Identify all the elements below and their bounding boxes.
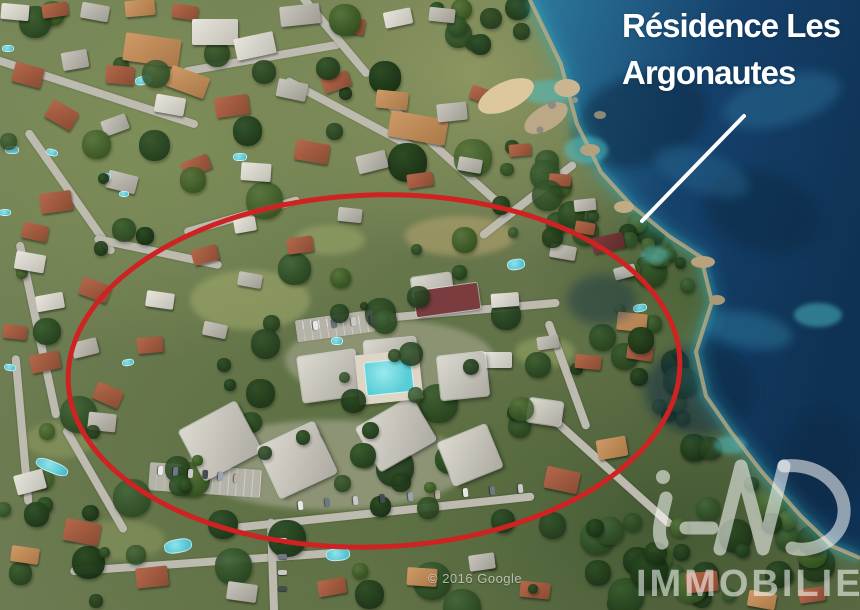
property-title-line2: Argonautes [622, 49, 840, 96]
house [240, 162, 271, 182]
pool [121, 358, 134, 367]
aerial-photo-canvas: Résidence Les Argonautes © 2016 Google I… [0, 0, 860, 610]
house [747, 590, 777, 610]
car [325, 498, 331, 507]
tree [443, 589, 481, 610]
house [145, 290, 175, 310]
house [428, 7, 455, 24]
tree [126, 545, 146, 565]
pool [632, 303, 647, 313]
house [2, 324, 27, 340]
car [278, 554, 287, 559]
car [462, 488, 468, 497]
tree [82, 130, 111, 159]
house [21, 221, 50, 242]
tree [452, 227, 477, 252]
house [406, 171, 434, 188]
tree [252, 60, 276, 84]
tree [670, 518, 689, 537]
tree [391, 473, 410, 492]
tree [675, 410, 691, 426]
tree [136, 227, 153, 244]
car [350, 317, 356, 327]
tree [417, 497, 439, 519]
house [61, 49, 90, 71]
tree [339, 372, 350, 383]
property-title-line1: Résidence Les [622, 2, 840, 49]
tree [251, 329, 281, 359]
house [685, 571, 719, 594]
house [375, 89, 409, 110]
tree [362, 422, 380, 440]
tree [0, 133, 17, 150]
car [380, 494, 386, 503]
tree [179, 479, 191, 491]
tree [532, 180, 563, 211]
tree [650, 252, 664, 266]
house [92, 381, 125, 409]
house [275, 78, 308, 102]
tree [480, 8, 501, 29]
tree [652, 399, 666, 413]
car [188, 469, 194, 478]
tree [268, 520, 306, 558]
tree [525, 352, 551, 378]
tree [330, 304, 349, 323]
house [35, 292, 65, 313]
house [337, 207, 362, 223]
car [517, 483, 523, 492]
tree [589, 324, 616, 351]
tree [696, 497, 720, 521]
apartment-building [437, 352, 489, 401]
tree [9, 562, 31, 584]
tree [180, 167, 206, 193]
tree [33, 318, 60, 345]
house [574, 354, 601, 370]
house [124, 0, 155, 17]
house [70, 337, 99, 359]
tree [296, 430, 311, 445]
tree [208, 510, 238, 540]
tree [82, 505, 99, 522]
tree [373, 310, 397, 334]
tree [542, 227, 562, 247]
tree [669, 368, 698, 397]
tree [411, 244, 422, 255]
pool [2, 45, 14, 52]
house [28, 350, 61, 374]
tree [39, 423, 55, 439]
pool [119, 191, 129, 197]
house [383, 7, 414, 28]
tree [369, 61, 401, 93]
pool [325, 546, 350, 561]
tree [399, 342, 423, 366]
tree [673, 544, 690, 561]
pool [163, 537, 193, 556]
house [491, 292, 520, 308]
house [0, 3, 29, 21]
car [278, 570, 287, 575]
tree [350, 443, 376, 469]
tree [505, 0, 530, 20]
tree [246, 182, 283, 219]
tree [644, 542, 666, 564]
tree [680, 278, 695, 293]
house [44, 99, 80, 131]
car [407, 492, 413, 501]
tree [352, 563, 368, 579]
house [226, 581, 258, 603]
tree [585, 560, 611, 586]
tree [539, 512, 566, 539]
tree [334, 475, 351, 492]
car [435, 490, 441, 499]
house [595, 436, 628, 461]
tree [86, 425, 100, 439]
tree [89, 594, 103, 608]
tree [139, 130, 170, 161]
house [573, 198, 596, 212]
tree [233, 116, 262, 145]
house [105, 65, 134, 85]
tree [722, 588, 736, 602]
tree [630, 368, 648, 386]
house [279, 3, 321, 27]
tree [452, 265, 467, 280]
tree [99, 547, 111, 559]
pool [0, 209, 11, 216]
house [543, 466, 581, 495]
tree [278, 253, 310, 285]
house [78, 276, 112, 303]
tree [765, 561, 792, 588]
house [11, 61, 45, 88]
tree [797, 526, 827, 556]
tree [424, 482, 436, 494]
tree [491, 509, 516, 534]
house [192, 19, 238, 45]
tree [513, 23, 529, 39]
tree [94, 241, 109, 256]
tree [98, 173, 109, 184]
house [214, 94, 250, 119]
house [536, 334, 560, 350]
tree [492, 196, 510, 214]
tree [675, 257, 687, 269]
house [355, 150, 388, 175]
tree [341, 389, 365, 413]
tree [744, 477, 758, 491]
tree [407, 286, 429, 308]
car [233, 473, 239, 482]
tree [326, 123, 343, 140]
house [317, 577, 347, 598]
car [278, 586, 287, 591]
tree [142, 60, 170, 88]
tree [500, 163, 513, 176]
tree [215, 548, 253, 586]
tree [699, 437, 722, 460]
house [468, 84, 495, 105]
car [278, 538, 287, 543]
tree [761, 513, 782, 534]
tree [217, 358, 231, 372]
house [136, 336, 163, 354]
google-copyright-watermark: © 2016 Google [428, 571, 522, 586]
tree [586, 519, 604, 537]
tree [192, 455, 203, 466]
pool [506, 257, 525, 270]
house [482, 352, 512, 368]
tree [113, 479, 151, 517]
house [436, 101, 468, 122]
tree [508, 227, 518, 237]
car [297, 500, 303, 509]
car [203, 470, 209, 479]
tree [112, 218, 136, 242]
tree [735, 544, 750, 559]
tree [0, 502, 11, 517]
tree [339, 87, 352, 100]
house [294, 139, 331, 165]
house [509, 143, 532, 157]
tree [408, 387, 424, 403]
car [352, 496, 358, 505]
house [80, 2, 110, 23]
pool [233, 153, 247, 161]
tree [623, 513, 642, 532]
tree [258, 446, 272, 460]
tree [470, 34, 491, 55]
car [157, 465, 163, 474]
house [13, 468, 47, 495]
tree [330, 268, 350, 288]
pool [331, 337, 343, 345]
property-title: Résidence Les Argonautes [622, 2, 840, 96]
tree [329, 4, 361, 36]
tree [355, 580, 384, 609]
house [39, 190, 73, 214]
tree [628, 327, 654, 353]
house [798, 586, 826, 603]
tree [24, 502, 49, 527]
tree [641, 238, 655, 252]
tree [246, 379, 275, 408]
car [312, 320, 318, 330]
house [233, 216, 257, 234]
car [490, 485, 496, 494]
car [218, 472, 224, 481]
tree [509, 397, 534, 422]
house [135, 565, 169, 588]
tree [224, 379, 235, 390]
tree [316, 57, 340, 81]
